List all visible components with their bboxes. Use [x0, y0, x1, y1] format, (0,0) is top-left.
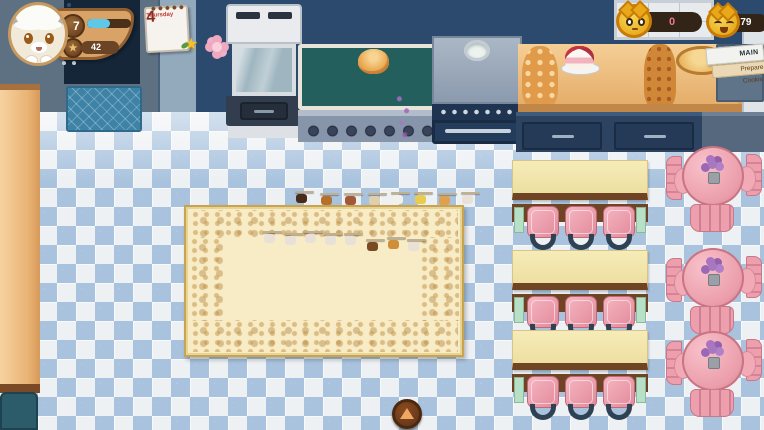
xp-bar	[87, 19, 131, 28]
stool-legs	[530, 404, 556, 420]
bar-table-top	[512, 330, 648, 370]
stool-legs	[568, 404, 594, 420]
vase-icon	[708, 274, 720, 286]
coin-eye	[626, 18, 633, 26]
happy-cat-coin-icon	[706, 6, 740, 38]
xp-fill	[87, 19, 110, 28]
cafe-table-set	[666, 146, 762, 234]
cat-paw-icon	[25, 55, 38, 66]
bench-cushion	[636, 297, 646, 323]
avatar-frame	[8, 2, 68, 66]
bar-table-top	[512, 250, 648, 290]
currency-value: 0	[669, 12, 675, 32]
cat-coin-icon	[616, 4, 652, 38]
bar-table-top	[512, 160, 648, 200]
chair	[690, 204, 734, 232]
stool-legs	[530, 234, 556, 250]
bar-table	[512, 330, 648, 422]
expand-drawer-button[interactable]	[392, 399, 422, 429]
quest-objective-text: Prepare Cookie	[739, 62, 764, 88]
cat-eye-icon	[24, 33, 33, 44]
player-avatar[interactable]	[8, 2, 70, 68]
bench-cushion	[514, 297, 524, 323]
stool-legs	[568, 234, 594, 250]
bench-cushion	[636, 377, 646, 403]
cat-paw-icon	[40, 55, 53, 66]
chair	[690, 306, 734, 334]
star-leaf-icon: ★	[184, 34, 198, 54]
cafe-table-set	[666, 248, 762, 336]
stool-legs	[606, 404, 632, 420]
game-scene: 7 ★ 42 Thursday 4 ★ 0 4.79 M	[0, 0, 764, 430]
vase-icon	[708, 357, 720, 369]
coin-eye	[638, 18, 645, 26]
coin-eye	[714, 21, 722, 26]
stool-legs	[606, 234, 632, 250]
bench-cushion	[514, 377, 524, 403]
star-count: 42	[81, 41, 119, 54]
coin-mouth	[720, 27, 728, 33]
vase-icon	[708, 172, 720, 184]
bar-table	[512, 160, 648, 252]
furniture-layer	[0, 0, 764, 430]
chef-hat-icon	[16, 6, 60, 28]
chair	[690, 389, 734, 417]
cat-eye-icon	[45, 33, 54, 44]
cafe-table-set	[666, 331, 762, 419]
star-count-value: 42	[91, 41, 101, 54]
coin-mouth	[632, 28, 638, 30]
flower-bouquet-icon	[708, 160, 717, 169]
bench-cushion	[514, 207, 524, 233]
flower-icon	[212, 42, 222, 52]
level-value: 7	[73, 16, 80, 36]
flower-bouquet-icon	[708, 262, 717, 271]
bench-cushion	[636, 207, 646, 233]
bar-table	[512, 250, 648, 342]
calendar-day: 4	[146, 9, 156, 27]
flower-bouquet-icon	[708, 345, 717, 354]
coin-eye	[726, 21, 734, 26]
